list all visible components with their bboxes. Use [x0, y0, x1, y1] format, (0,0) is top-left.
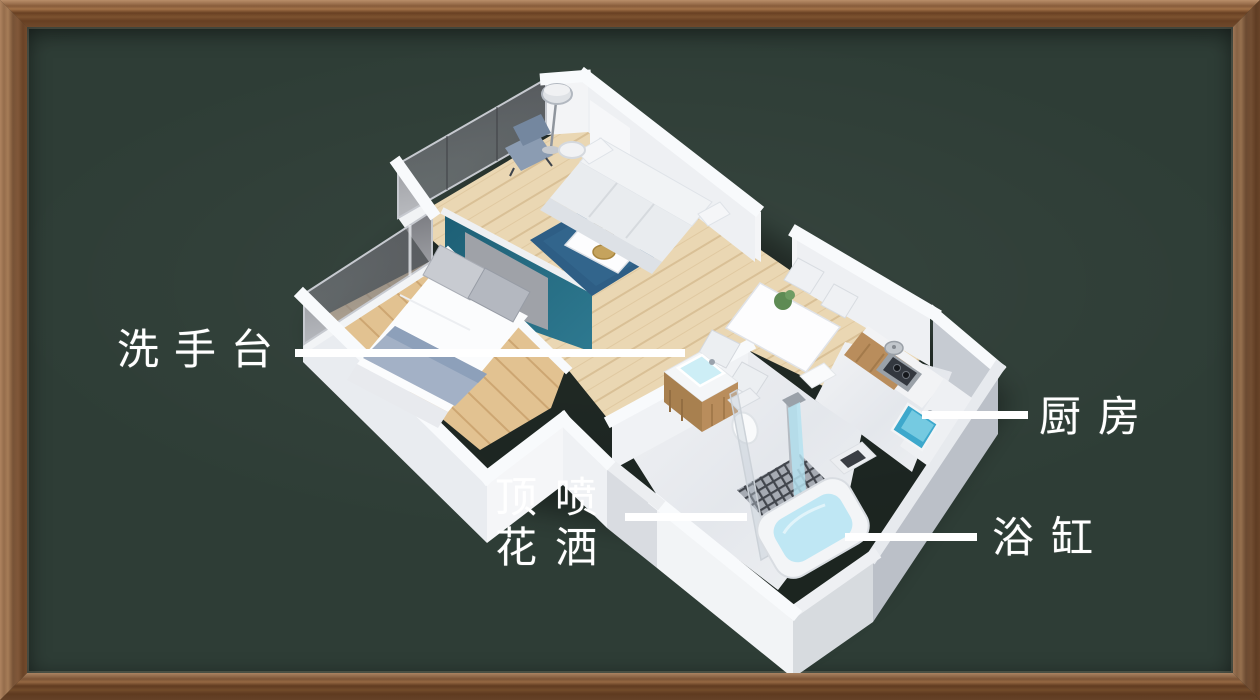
shower-label: 顶喷 花洒 — [495, 473, 615, 573]
kitchen-leader-line — [922, 411, 1028, 419]
side-table — [559, 142, 585, 158]
shower-label-line1: 顶喷 — [495, 473, 615, 523]
shower-leader-line — [625, 513, 747, 521]
washbasin-label: 洗手台 — [117, 327, 288, 373]
kitchen-label: 厨房 — [1039, 394, 1157, 440]
washbasin-leader-line — [295, 349, 685, 357]
bathtub-label: 浴缸 — [992, 515, 1110, 561]
bathtub-leader-line — [845, 533, 977, 541]
framed-chalkboard: 洗手台 厨房 顶喷 花洒 浴缸 — [0, 0, 1260, 700]
basin-faucet — [709, 359, 715, 365]
shower-label-line2: 花洒 — [495, 523, 615, 573]
